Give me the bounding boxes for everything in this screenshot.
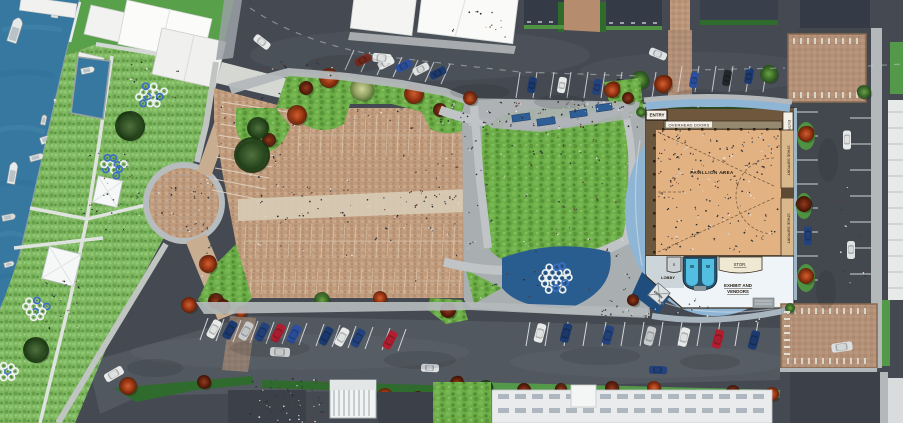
svg-text:W: W (706, 264, 710, 269)
svg-text:ENTRY: ENTRY (649, 113, 664, 118)
svg-text:S: S (673, 262, 676, 267)
svg-text:VENDORS: VENDORS (727, 289, 749, 294)
svg-text:STAGE SUPPORT: STAGE SUPPORT (787, 145, 791, 176)
svg-text:M: M (690, 264, 694, 269)
svg-text:STOR.: STOR. (734, 262, 747, 267)
svg-text:LOBBY: LOBBY (661, 275, 675, 280)
svg-text:EXHIBIT AND: EXHIBIT AND (724, 283, 752, 288)
svg-text:PAVILLION AREA: PAVILLION AREA (690, 170, 734, 175)
svg-text:OVERHEAD DOORS: OVERHEAD DOORS (668, 122, 709, 127)
svg-text:STAGE SUPPORT: STAGE SUPPORT (787, 213, 791, 244)
